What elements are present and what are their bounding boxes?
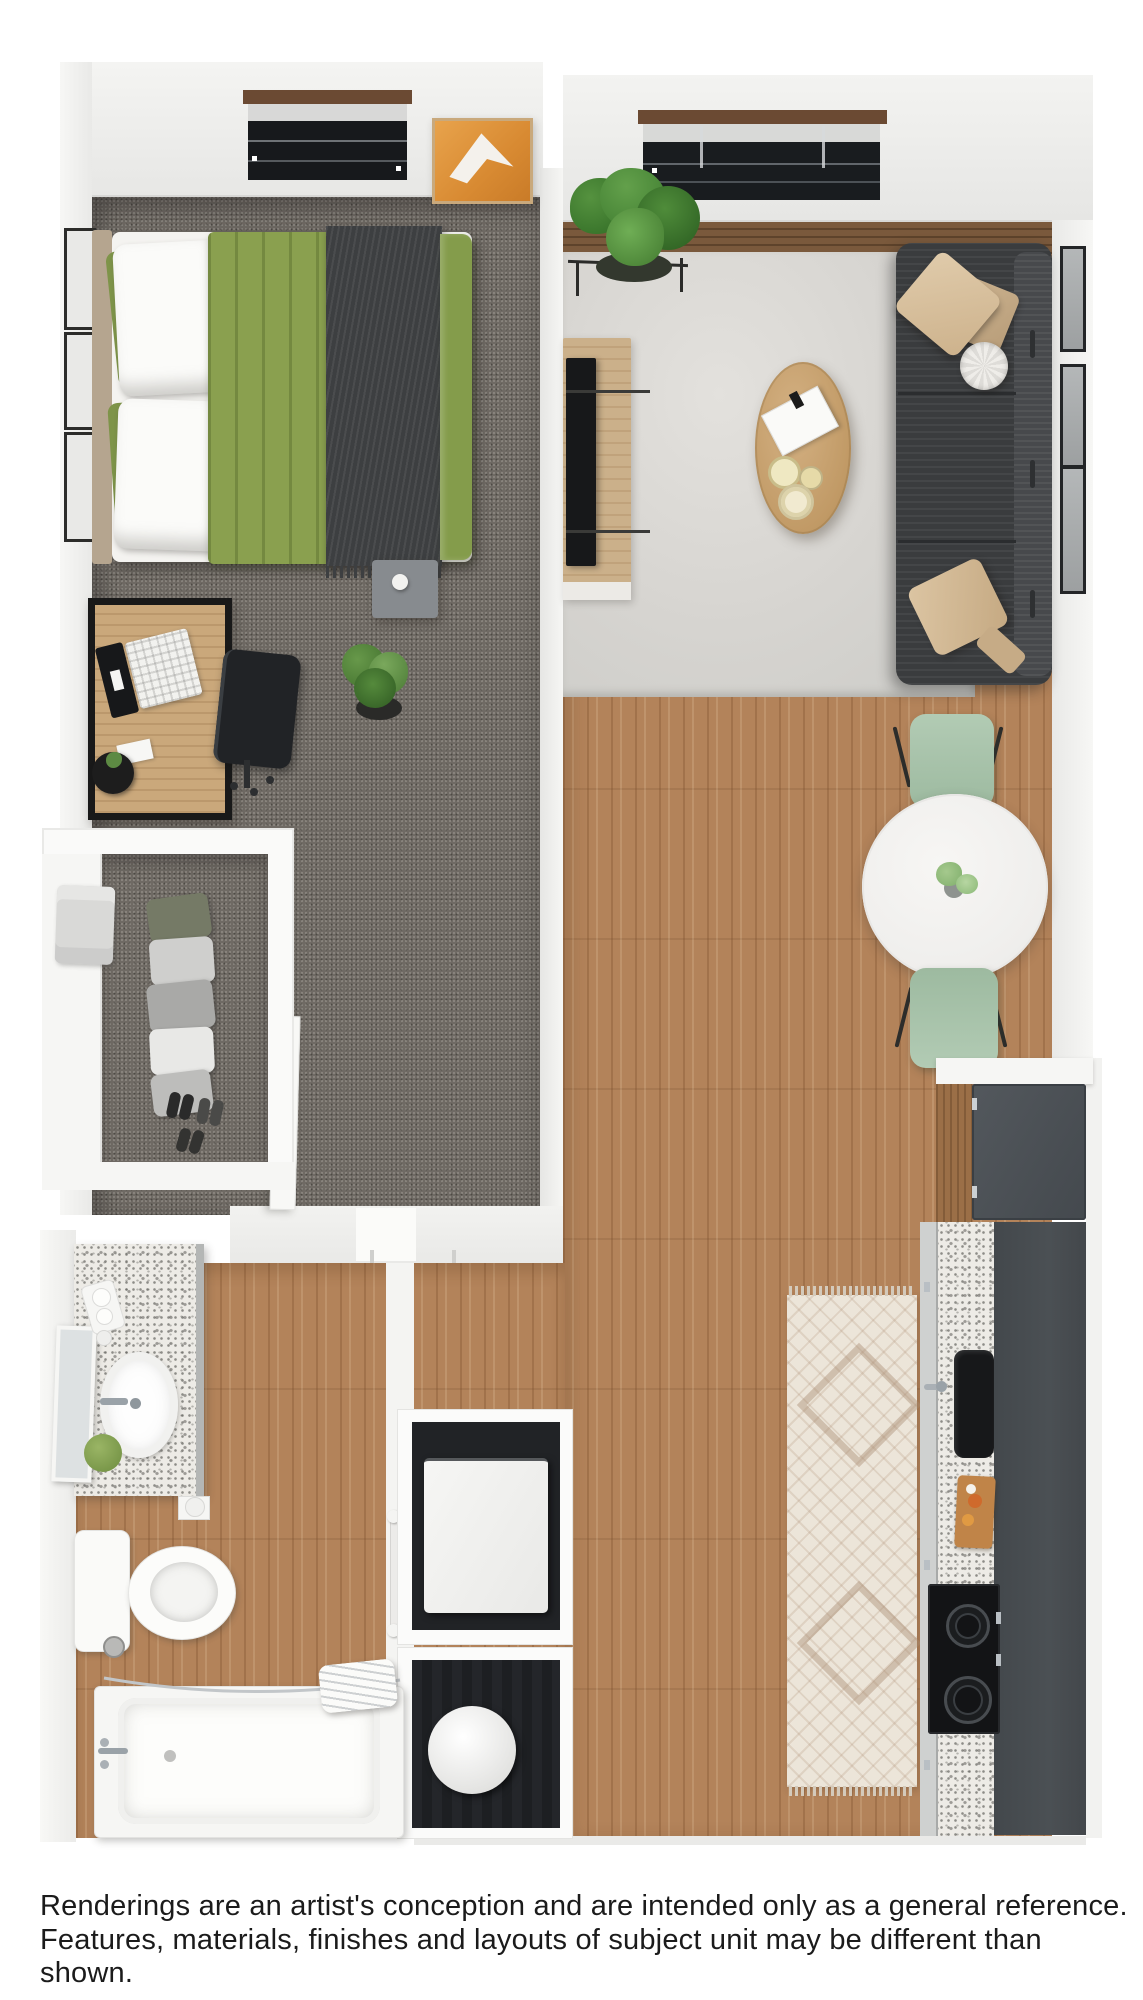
office-chair-base [244,760,250,788]
bedroom-plant-leaves [354,668,396,708]
cooktop-burner [944,1676,992,1724]
hall-door-frame-notch [370,1250,374,1263]
floor-drain [103,1636,125,1658]
bedroom-window-valance [243,90,412,104]
sofa-back-slot [1030,330,1035,358]
counter-bracket [924,1282,930,1292]
media-console-base [563,582,631,600]
corner-plant-stand-leg [680,258,683,292]
green-duvet [208,232,330,564]
bathtub-basin [118,1698,380,1824]
living-room-window-curtain-track [643,124,880,142]
soap-dish [92,1288,111,1307]
cooktop-knob [996,1654,1001,1666]
gallery-frame-2 [1060,364,1086,468]
dining-table-plant [956,874,978,894]
utility-round-unit [428,1706,516,1794]
counter-bracket [924,1560,930,1570]
toilet-paper-roll [185,1497,205,1517]
kitchen-wood-cabinet [936,1084,972,1222]
living-room-window-valance [638,110,887,124]
bathroom-left-wall [40,1230,76,1842]
office-chair-wheel [266,776,274,784]
nightstand [372,560,438,618]
corner-plant-stand-leg [576,262,579,296]
living-room-window-mullion [643,181,880,183]
bedroom-window-handle [252,156,257,161]
refrigerator-top [972,1084,1086,1220]
cooktop-burner [946,1604,990,1648]
living-room-window-handle [652,168,657,173]
gallery-frame-3 [1060,466,1086,594]
decor-bowl [778,484,814,520]
tub-faucet [98,1748,128,1754]
vanity-faucet [100,1398,128,1405]
kitchen-dark-counter [994,1222,1086,1835]
living-room-window-hanger [822,126,825,168]
toilet-bowl-inner [150,1562,218,1622]
cutting-board-food [962,1514,974,1526]
runner-rug-fringe-bottom [789,1786,915,1796]
vanity-drain [130,1398,141,1409]
kitchen-sink [954,1350,994,1458]
orange-wall-art [432,118,533,204]
runner-rug-fringe-top [789,1286,915,1296]
cooktop-knob [996,1612,1001,1624]
corner-plant-leaves [606,208,664,266]
living-room-window-mullion [643,163,880,165]
refrigerator-hinge [972,1186,977,1198]
counter-stainless-lip [920,1222,938,1836]
washer [424,1458,548,1613]
vanity-cup [96,1330,112,1346]
wall-art-abstract-shape [443,127,523,191]
cutting-board-food [968,1494,982,1508]
soap-dish [96,1308,113,1325]
laptop-keyboard [124,628,203,709]
vanity-moss-plant [84,1434,122,1472]
towel-on-tub [318,1658,399,1714]
tub-faucet-handle [100,1760,109,1769]
gallery-frame-1 [1060,246,1086,352]
laptop-screen-glyph [110,669,125,691]
nightstand-vase [392,574,408,590]
bedroom-window-curtain-track [248,104,407,121]
tub-drain [164,1750,176,1762]
office-chair-wheel [230,782,238,790]
bedroom-window-handle [396,166,401,171]
tv-bracket [566,530,650,533]
floor-plan-canvas: Renderings are an artist's conception an… [0,0,1143,2000]
kitchen-right-wall [1086,1058,1102,1838]
green-duvet-foot [440,234,472,560]
tv-bracket [566,390,650,393]
bedroom-window-mullion [248,160,407,162]
hanging-garment [149,1026,215,1075]
sofa-back-slot [1030,590,1035,618]
office-chair-wheel [250,788,258,796]
hanging-garment [146,979,217,1034]
sofa-cushion-seam [898,392,1016,395]
cutting-board-egg [966,1484,976,1494]
closet-bottom-wall [42,1162,294,1190]
living-room-window-hanger [700,126,703,168]
divider-wall [540,168,563,1215]
tub-faucet-handle [100,1738,109,1747]
dining-chair-bottom [910,968,998,1068]
disclaimer-line-1: Renderings are an artist's conception an… [40,1890,1130,1924]
disclaimer-line-2: Features, materials, finishes and layout… [40,1924,1130,1991]
charcoal-throw-blanket [326,226,442,566]
refrigerator-hinge [972,1098,977,1110]
kitchen-end-panel [936,1058,1093,1084]
bathroom-door-opening [356,1208,416,1261]
folded-sweater [55,885,116,965]
sofa-cushion-seam [898,540,1016,543]
sofa-round-pillow [960,342,1008,390]
counter-bracket [924,1760,930,1770]
sofa-back-slot [1030,460,1035,488]
bedroom-window-mullion [248,140,407,142]
toilet-tank [74,1530,130,1652]
office-chair-seat [212,648,301,770]
kitchen-faucet-base [936,1381,947,1392]
disclaimer-text: Renderings are an artist's conception an… [40,1890,1130,1991]
hall-door-frame-notch [452,1250,456,1263]
